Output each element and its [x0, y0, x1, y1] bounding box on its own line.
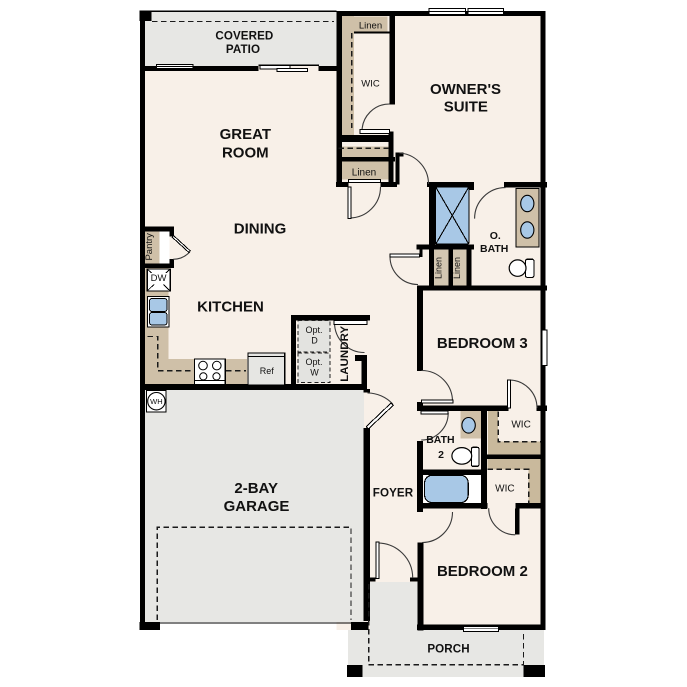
svg-text:LAUNDRY: LAUNDRY: [339, 326, 351, 382]
svg-text:DINING: DINING: [234, 221, 287, 238]
svg-text:FOYER: FOYER: [373, 487, 414, 500]
svg-text:Ref: Ref: [260, 366, 275, 376]
svg-text:BATH: BATH: [426, 434, 454, 446]
svg-text:O.: O.: [490, 230, 501, 242]
svg-text:WIC: WIC: [511, 419, 530, 430]
svg-text:BEDROOM 3: BEDROOM 3: [437, 335, 528, 352]
svg-text:2-BAY: 2-BAY: [234, 480, 278, 497]
svg-text:BEDROOM 2: BEDROOM 2: [437, 563, 528, 580]
svg-text:Linen: Linen: [352, 167, 376, 178]
svg-text:Pantry: Pantry: [144, 233, 155, 261]
svg-text:OWNER'S: OWNER'S: [430, 81, 501, 98]
svg-text:ROOM: ROOM: [222, 145, 269, 162]
svg-text:DW: DW: [151, 273, 167, 284]
svg-text:2: 2: [438, 449, 444, 461]
svg-text:PATIO: PATIO: [226, 43, 260, 56]
svg-text:D: D: [311, 336, 318, 346]
svg-text:PORCH: PORCH: [427, 643, 469, 656]
svg-text:BATH: BATH: [480, 243, 508, 255]
svg-text:SUITE: SUITE: [444, 98, 488, 115]
svg-text:WIC: WIC: [361, 79, 380, 90]
svg-text:WH: WH: [150, 397, 163, 406]
svg-text:Opt.: Opt.: [305, 325, 322, 335]
svg-text:Linen: Linen: [433, 257, 443, 279]
svg-text:KITCHEN: KITCHEN: [197, 299, 264, 316]
svg-text:GREAT: GREAT: [220, 126, 271, 143]
svg-text:COVERED: COVERED: [215, 30, 273, 43]
svg-text:WIC: WIC: [495, 484, 514, 495]
svg-text:Linen: Linen: [452, 257, 462, 279]
svg-text:Opt.: Opt.: [305, 357, 322, 367]
svg-text:W: W: [310, 367, 319, 377]
svg-text:Linen: Linen: [359, 21, 382, 32]
svg-text:GARAGE: GARAGE: [224, 498, 290, 515]
